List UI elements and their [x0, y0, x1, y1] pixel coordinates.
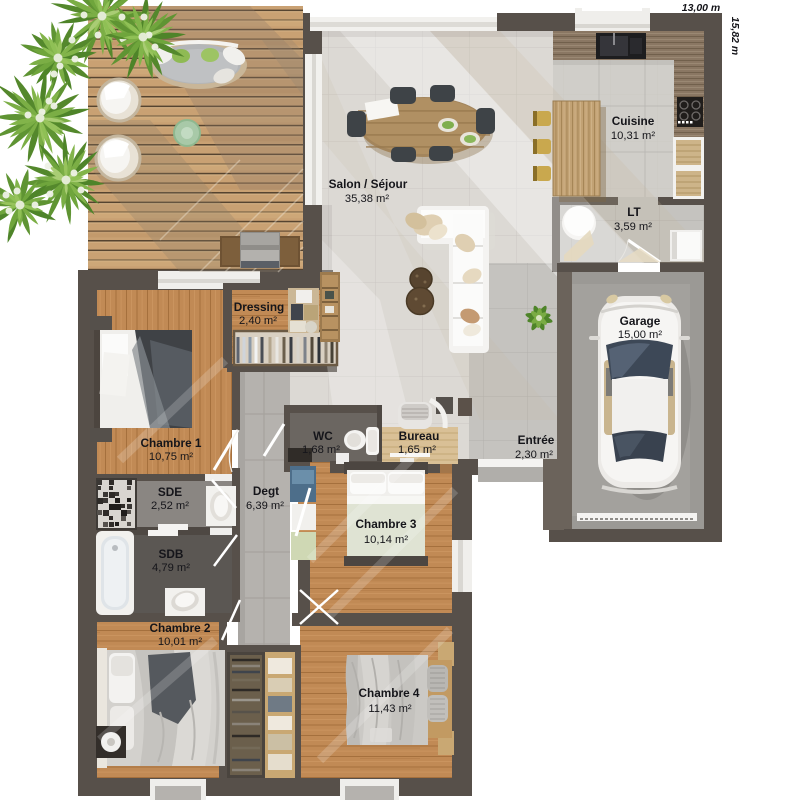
svg-text:15,00 m²: 15,00 m²	[618, 329, 662, 341]
svg-text:Bureau: Bureau	[399, 429, 440, 443]
svg-text:Cuisine: Cuisine	[612, 114, 655, 128]
svg-text:SDE: SDE	[158, 485, 182, 499]
svg-text:Entrée: Entrée	[518, 433, 555, 447]
svg-text:2,40 m²: 2,40 m²	[239, 315, 277, 327]
svg-text:6,39 m²: 6,39 m²	[246, 500, 284, 512]
svg-text:Garage: Garage	[620, 314, 661, 328]
svg-text:1,65 m²: 1,65 m²	[398, 444, 436, 456]
svg-text:2,30 m²: 2,30 m²	[515, 449, 553, 461]
svg-text:WC: WC	[313, 429, 333, 443]
svg-text:10,31 m²: 10,31 m²	[611, 130, 655, 142]
svg-text:Salon / Séjour: Salon / Séjour	[329, 177, 408, 191]
svg-text:LT: LT	[627, 205, 641, 219]
svg-text:10,14 m²: 10,14 m²	[364, 534, 408, 546]
svg-text:3,59 m²: 3,59 m²	[614, 221, 652, 233]
svg-text:10,75 m²: 10,75 m²	[149, 451, 193, 463]
svg-text:11,43 m²: 11,43 m²	[368, 703, 412, 715]
svg-text:Chambre 3: Chambre 3	[356, 517, 417, 531]
svg-text:Chambre 2: Chambre 2	[150, 621, 211, 635]
svg-text:13,00 m: 13,00 m	[682, 2, 721, 14]
svg-text:SDB: SDB	[159, 547, 184, 561]
svg-text:15,82 m: 15,82 m	[729, 17, 741, 56]
svg-text:4,79 m²: 4,79 m²	[152, 562, 190, 574]
svg-text:Chambre 4: Chambre 4	[359, 686, 420, 700]
svg-text:35,38 m²: 35,38 m²	[345, 193, 389, 205]
svg-text:1,68 m²: 1,68 m²	[302, 444, 340, 456]
svg-text:10,01 m²: 10,01 m²	[158, 636, 202, 648]
svg-text:Degt: Degt	[253, 484, 279, 498]
svg-text:Dressing: Dressing	[234, 300, 284, 314]
svg-text:Chambre 1: Chambre 1	[141, 436, 202, 450]
svg-text:2,52 m²: 2,52 m²	[151, 500, 189, 512]
